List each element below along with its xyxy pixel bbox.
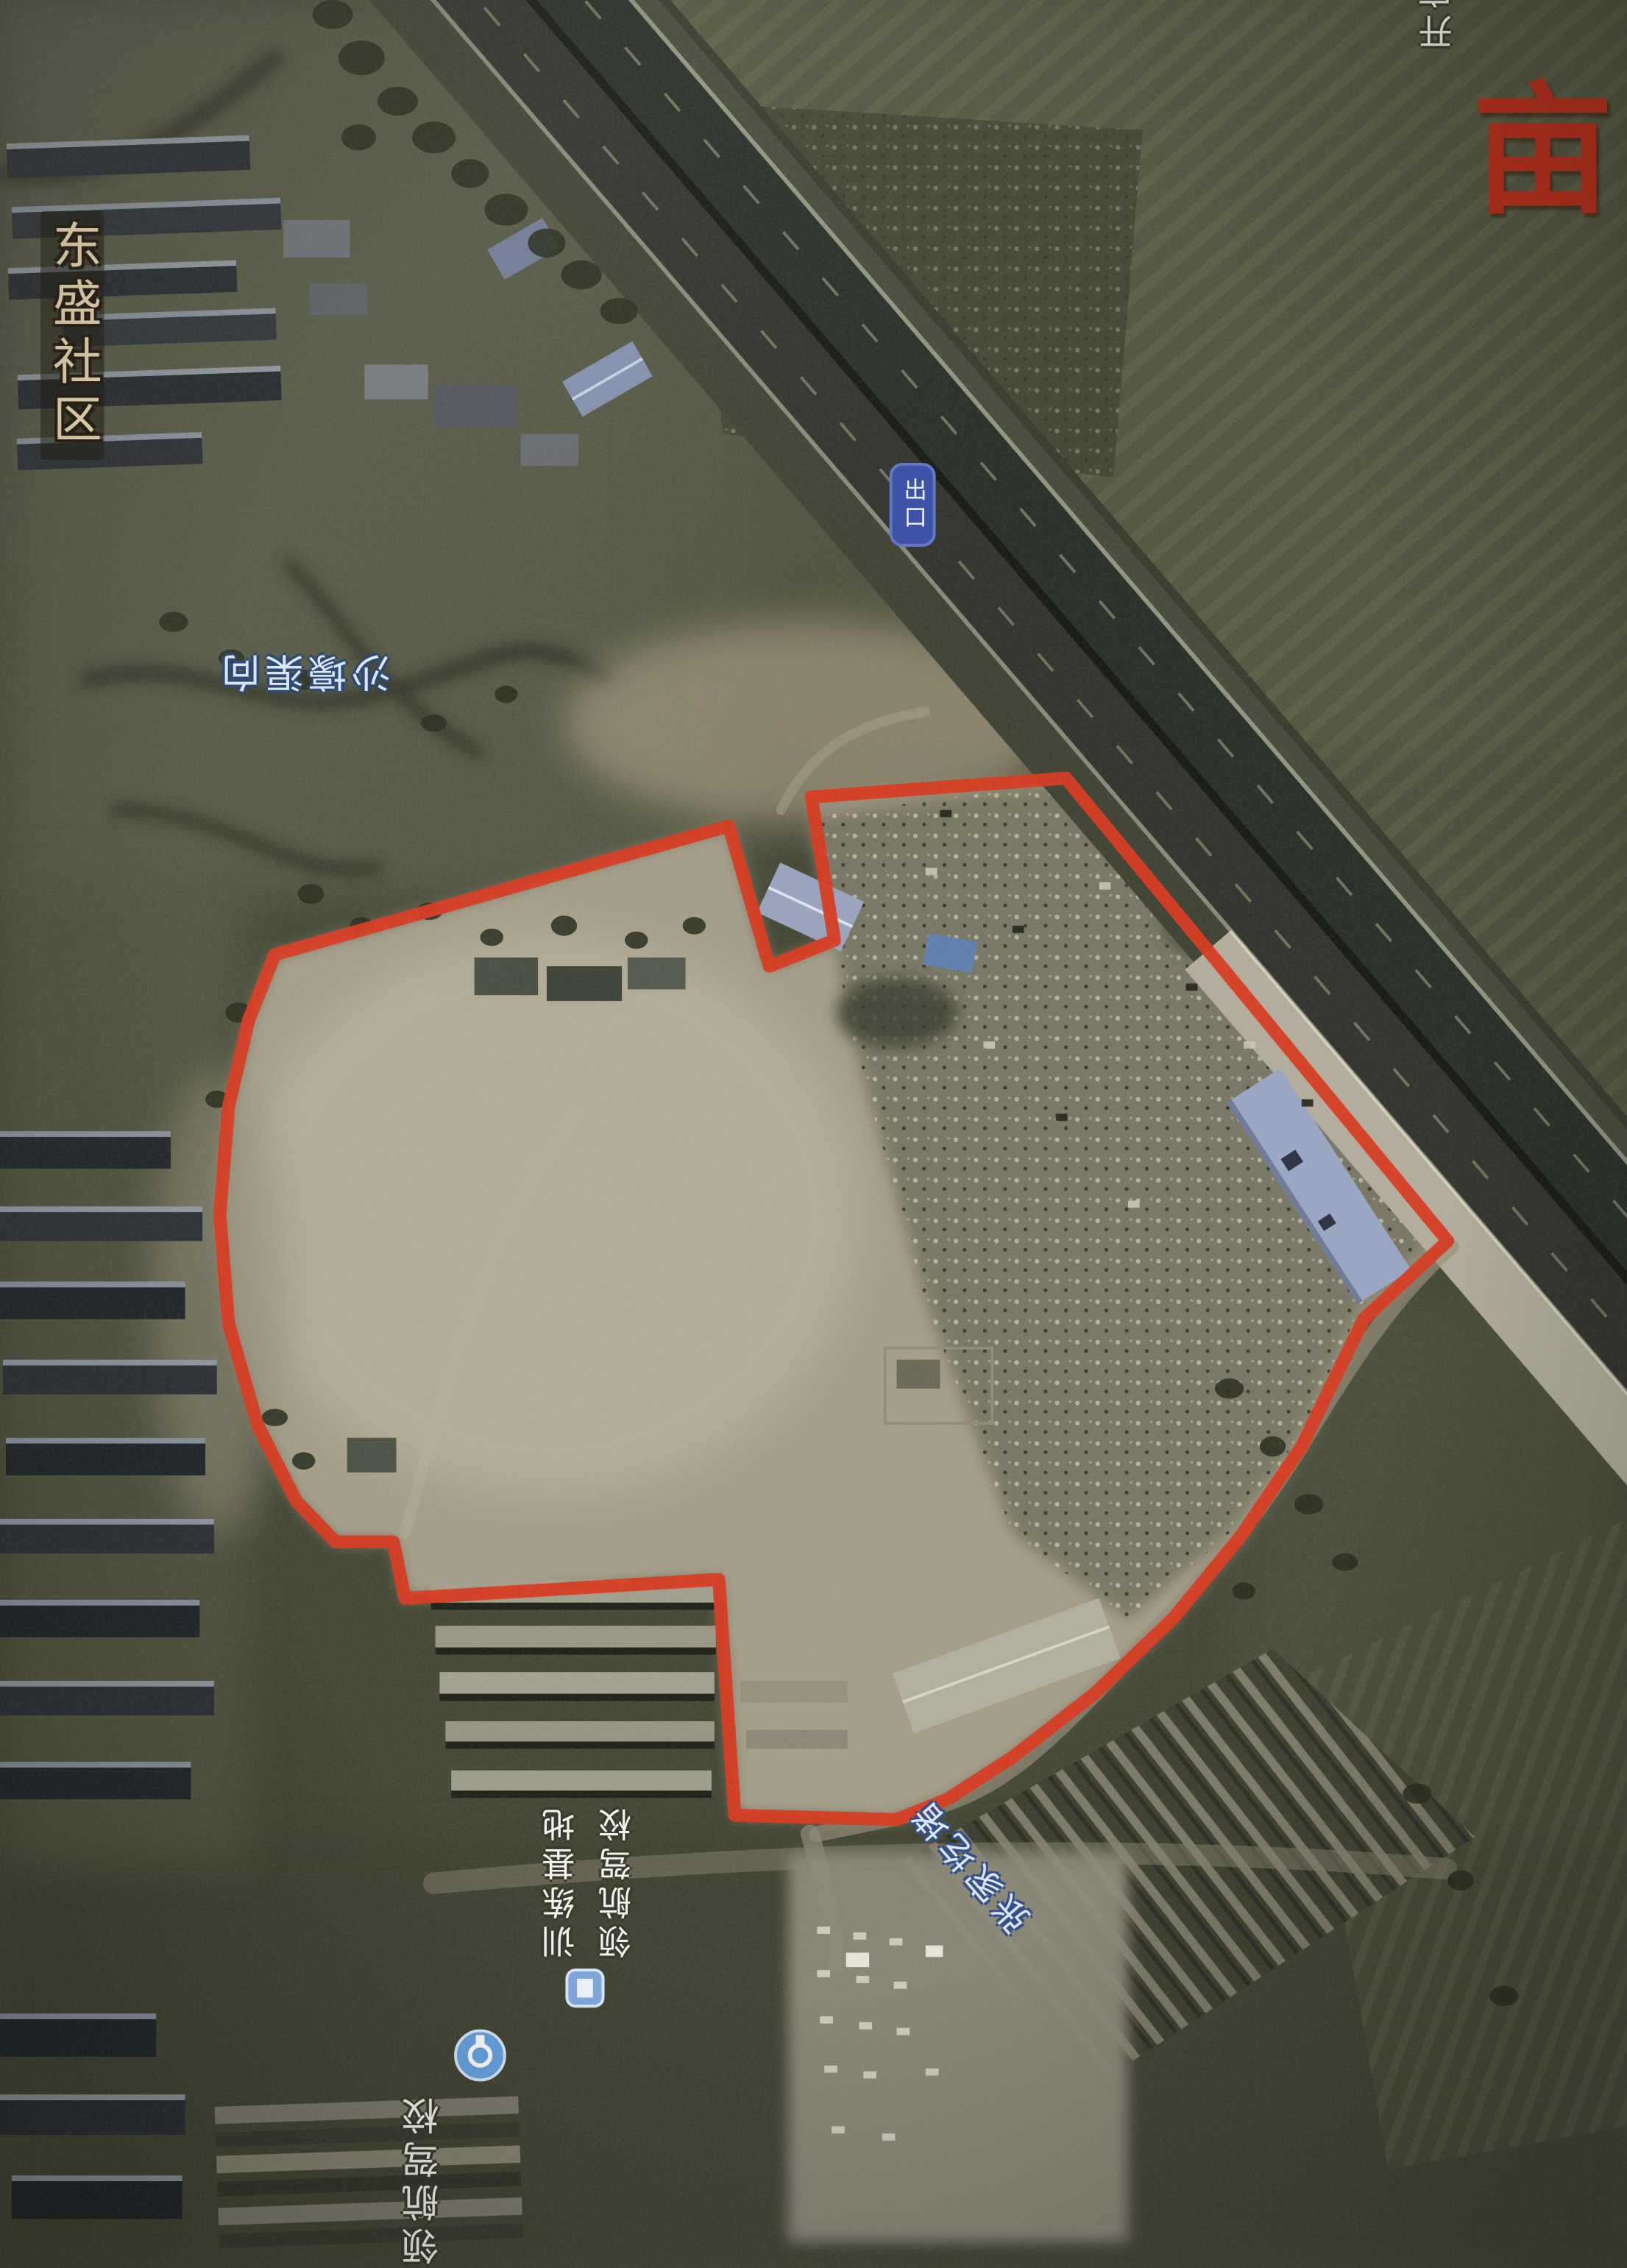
training-base-label: 训练基地 领航驾校 [535,1802,648,1958]
satellite-photo: 东胜谦信西片区约77亩 东盛社区 出口 沙壕渠向 训练基地 领航驾校 领航驾校 … [0,0,1627,2268]
expressway-exit-badge: 出口 [890,463,936,547]
community-label: 东盛社区 [40,211,104,460]
driving-school-label: 领航驾校 [403,2091,445,2265]
area-title: 东胜谦信西片区约77亩 [1449,75,1627,2268]
satellite-terrain [0,0,1627,2268]
corner-partial-label: 开庆 [1420,0,1459,49]
canal-label: 沙壕渠向 [217,648,391,692]
